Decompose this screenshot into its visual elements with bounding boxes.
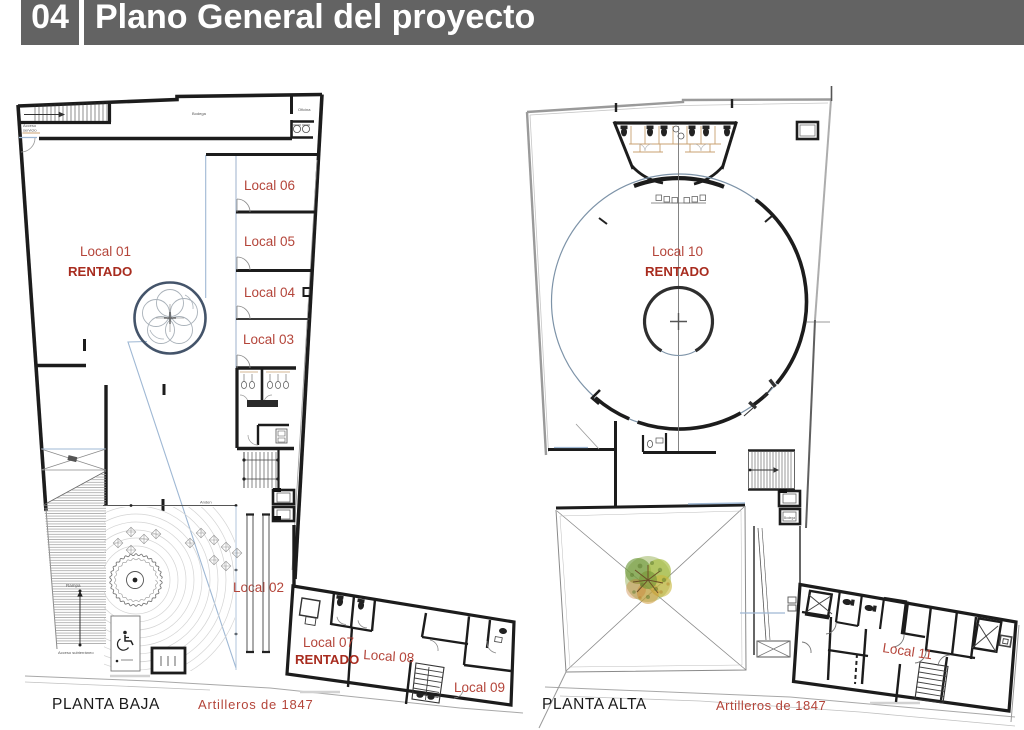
- svg-text:Anden: Anden: [200, 500, 212, 505]
- svg-text:Local 06: Local 06: [244, 178, 295, 193]
- svg-text:Acceso subterráneo: Acceso subterráneo: [58, 650, 94, 655]
- svg-text:RENTADO: RENTADO: [295, 652, 359, 667]
- svg-text:Local 04: Local 04: [244, 285, 296, 300]
- svg-text:Artilleros de 1847: Artilleros de 1847: [198, 697, 314, 712]
- svg-text:PLANTA ALTA: PLANTA ALTA: [542, 696, 647, 713]
- svg-text:Rampa: Rampa: [66, 583, 81, 588]
- svg-text:RENTADO: RENTADO: [645, 264, 709, 279]
- svg-text:Bodega: Bodega: [192, 111, 207, 116]
- svg-text:Local 05: Local 05: [244, 234, 295, 249]
- svg-text:RENTADO: RENTADO: [68, 264, 132, 279]
- svg-text:Local 10: Local 10: [652, 244, 703, 259]
- svg-text:Local 02: Local 02: [233, 580, 284, 595]
- svg-text:PLANTA BAJA: PLANTA BAJA: [52, 696, 160, 713]
- svg-text:Local 09: Local 09: [454, 680, 505, 695]
- svg-text:Local 07: Local 07: [303, 635, 354, 650]
- svg-text:Local 03: Local 03: [243, 332, 294, 347]
- svg-text:Local 01: Local 01: [80, 244, 131, 259]
- svg-text:servicio: servicio: [23, 128, 37, 133]
- svg-text:Bodega: Bodega: [784, 516, 795, 520]
- svg-text:Artilleros de 1847: Artilleros de 1847: [716, 698, 826, 713]
- svg-text:Oficina: Oficina: [298, 107, 311, 112]
